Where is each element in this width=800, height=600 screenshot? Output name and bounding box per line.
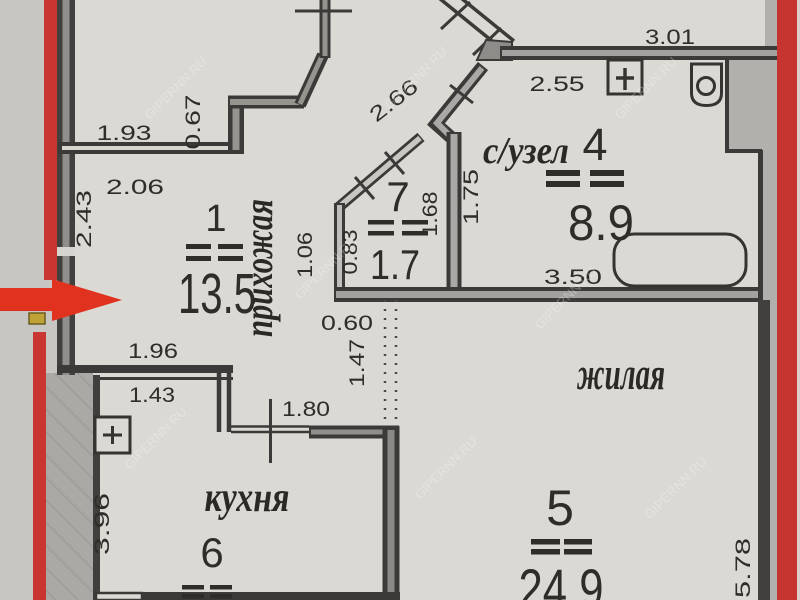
svg-text:7: 7 xyxy=(386,173,409,220)
svg-text:1.47: 1.47 xyxy=(346,339,369,387)
svg-text:1.80: 1.80 xyxy=(282,398,330,421)
svg-text:1.43: 1.43 xyxy=(129,384,175,407)
svg-text:4: 4 xyxy=(582,119,607,170)
svg-text:2.06: 2.06 xyxy=(106,176,164,199)
svg-text:0.67: 0.67 xyxy=(182,95,205,150)
svg-text:24.9: 24.9 xyxy=(519,557,604,600)
svg-text:1.7: 1.7 xyxy=(370,241,420,288)
svg-text:1.75: 1.75 xyxy=(460,169,483,225)
svg-text:2.43: 2.43 xyxy=(73,190,96,248)
svg-text:6: 6 xyxy=(200,529,223,576)
svg-text:1: 1 xyxy=(205,198,226,240)
svg-text:8.9: 8.9 xyxy=(568,195,634,251)
svg-text:прихожая: прихожая xyxy=(236,199,281,337)
svg-text:жилая: жилая xyxy=(576,348,665,399)
svg-text:5: 5 xyxy=(546,480,574,536)
svg-text:0.60: 0.60 xyxy=(321,312,373,335)
svg-text:5.78: 5.78 xyxy=(732,538,755,598)
svg-text:с/узел: с/узел xyxy=(483,130,569,172)
svg-text:2.55: 2.55 xyxy=(530,73,585,96)
svg-text:кухня: кухня xyxy=(205,475,290,521)
svg-text:1.93: 1.93 xyxy=(97,122,152,145)
svg-text:1.68: 1.68 xyxy=(419,192,442,237)
svg-text:3.01: 3.01 xyxy=(645,26,695,49)
svg-text:3.96: 3.96 xyxy=(91,493,114,555)
svg-text:1.96: 1.96 xyxy=(128,340,178,363)
